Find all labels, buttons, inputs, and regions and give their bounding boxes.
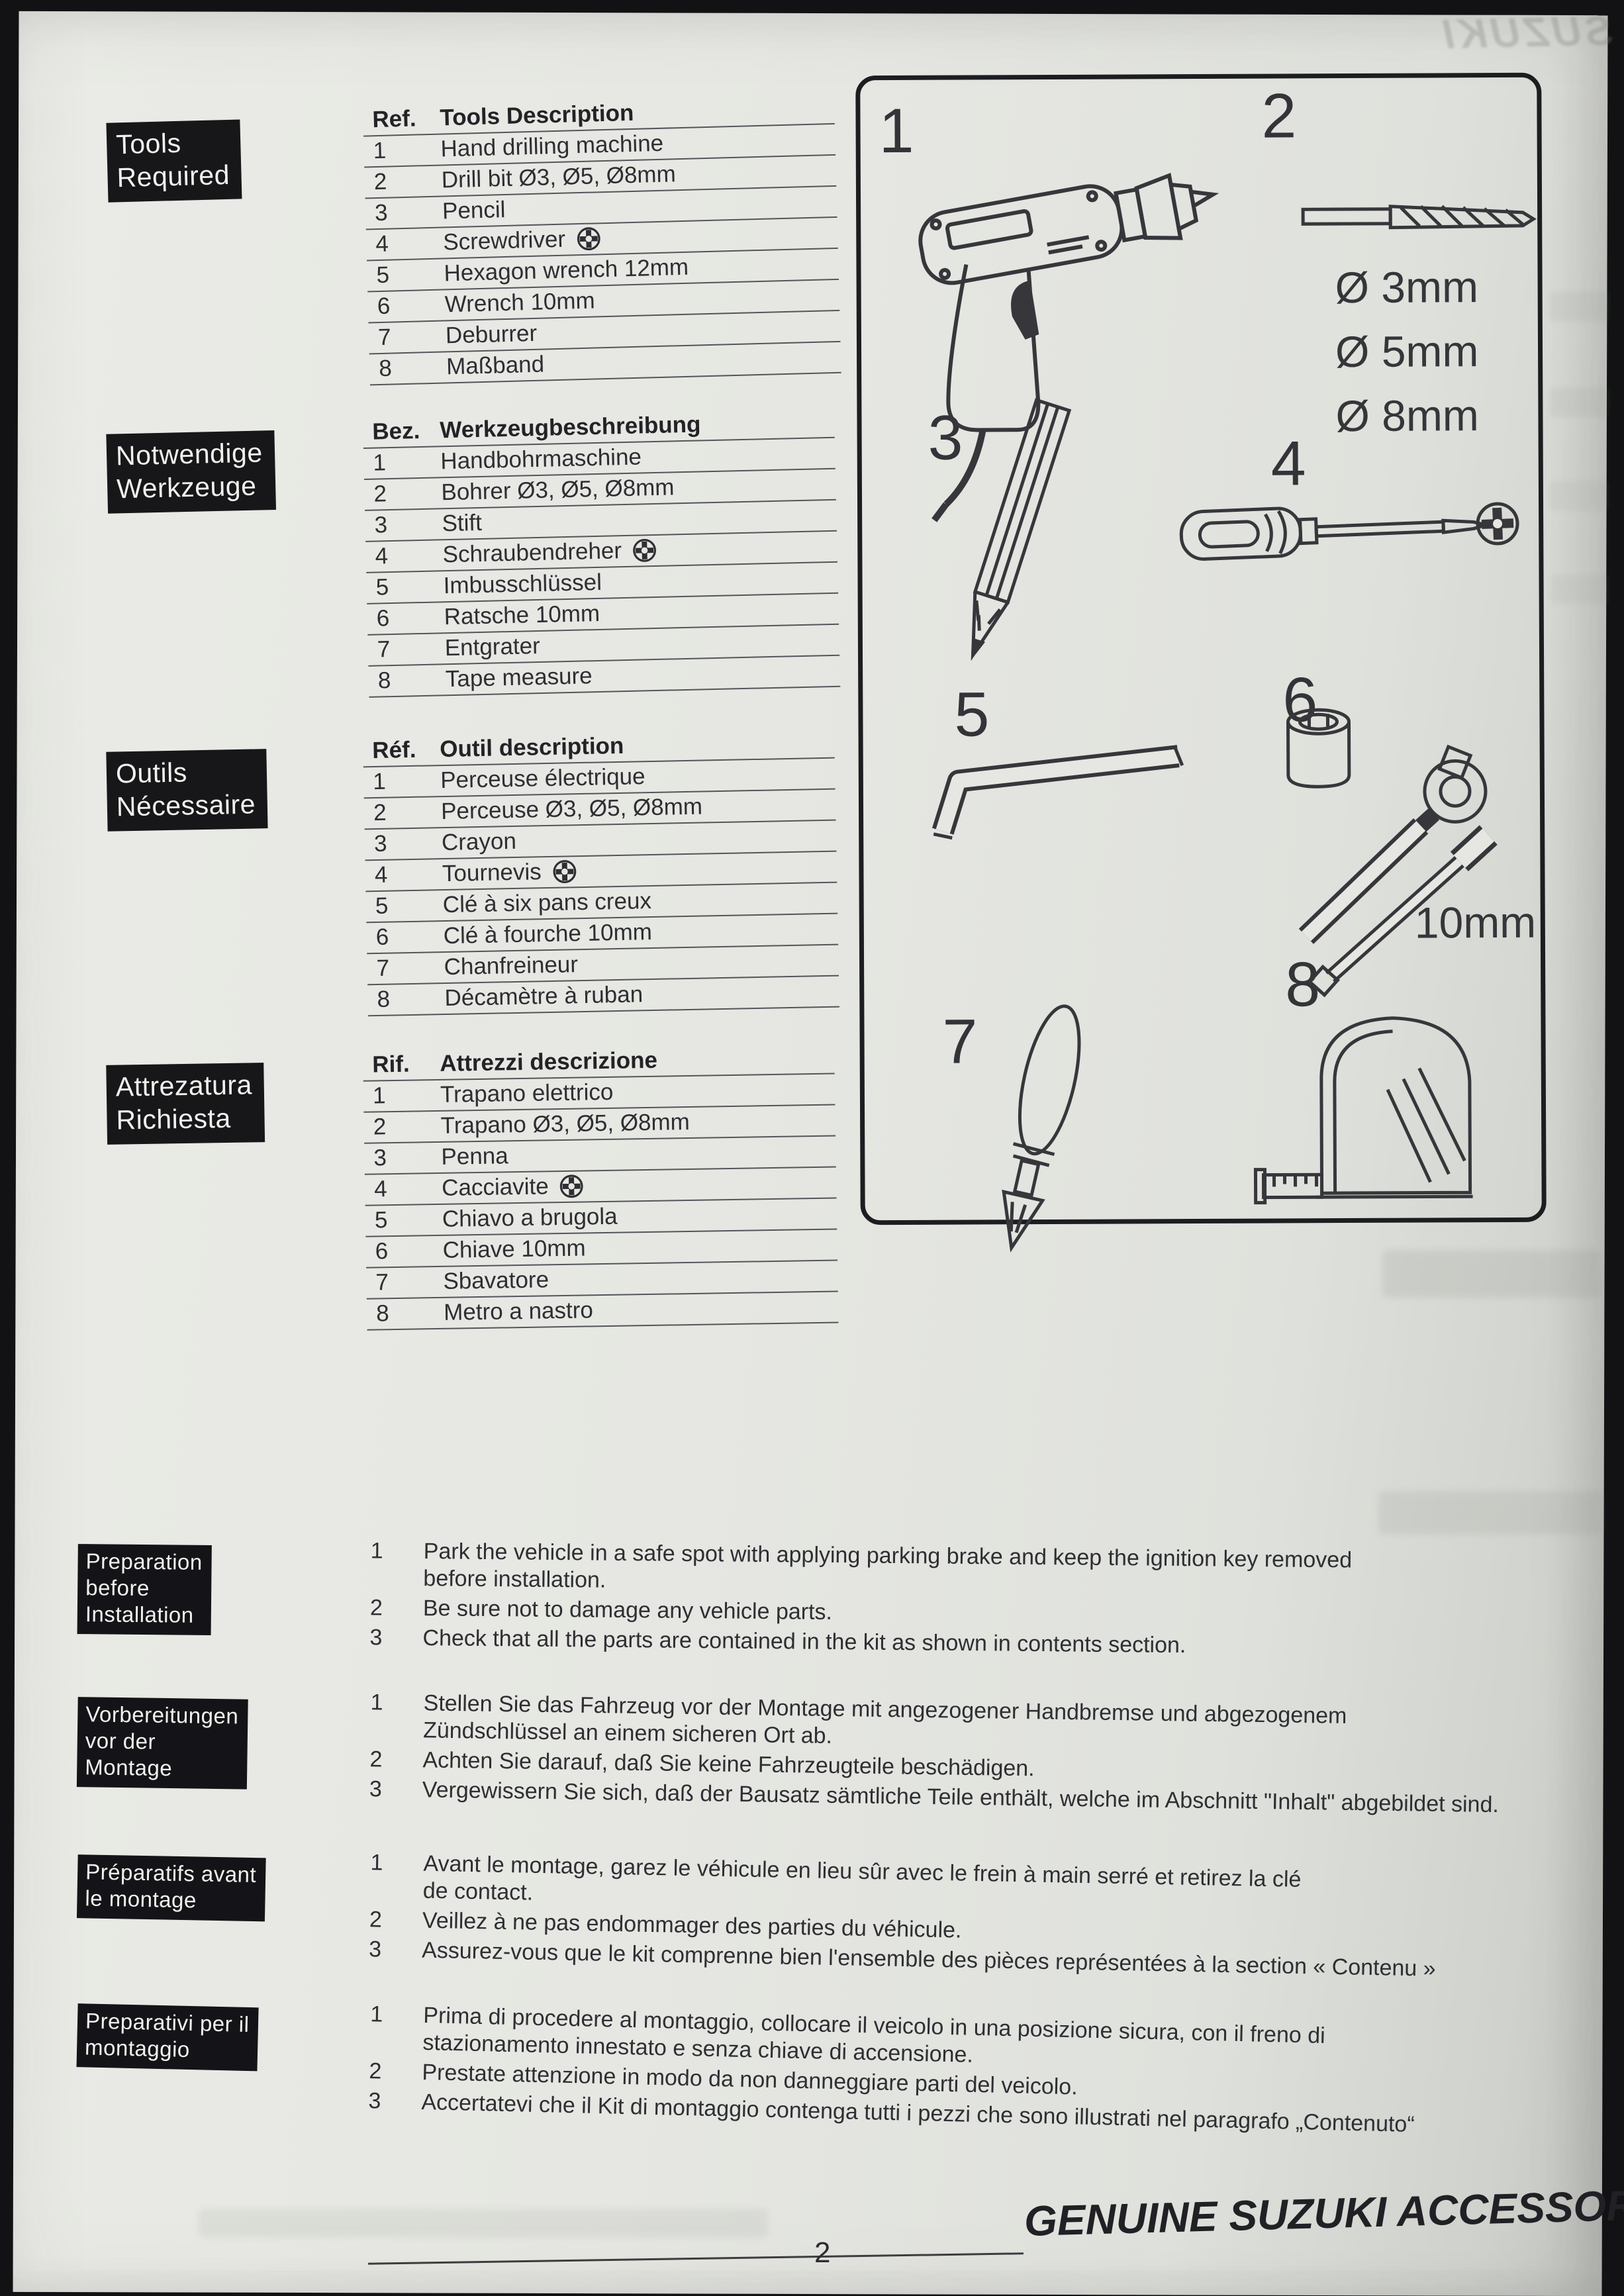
row-desc: Cacciavite — [442, 1169, 837, 1202]
ref-header: Bez. — [363, 417, 440, 446]
label-line: Preparativi per il — [85, 2007, 250, 2038]
row-desc-text: Perceuse Ø3, Ø5, Ø8mm — [441, 794, 703, 826]
row-ref: 6 — [367, 291, 445, 320]
row-ref: 5 — [365, 1206, 443, 1234]
prep-item-number: 2 — [369, 2058, 422, 2086]
label-line: Installation — [85, 1601, 202, 1629]
prep-label-de: Vorbereitungen vor der Montage — [77, 1697, 248, 1790]
label-line: Nécessaire — [116, 787, 256, 823]
prep-label-fr: Préparatifs avant le montage — [77, 1854, 266, 1921]
row-ref: 1 — [363, 448, 441, 477]
section-label-fr: Outils Nécessaire — [106, 749, 267, 832]
label-line: Preparation — [85, 1548, 202, 1576]
row-desc-text: Drill bit Ø3, Ø5, Ø8mm — [441, 161, 676, 193]
row-desc-text: Ratsche 10mm — [444, 600, 600, 630]
row-desc-text: Chiavo a brugola — [442, 1204, 618, 1233]
row-desc-text: Pencil — [442, 197, 506, 224]
desc-header: Attrezzi descrizione — [440, 1045, 835, 1077]
row-desc: Metro a nastro — [444, 1294, 839, 1326]
row-desc-text: Trapano elettrico — [440, 1079, 614, 1108]
row-desc-text: Imbusschlüssel — [443, 569, 602, 599]
label-line: Vorbereitungen — [85, 1701, 238, 1729]
row-desc-text: Entgrater — [444, 633, 540, 661]
row-desc-text: Sbavatore — [443, 1267, 549, 1295]
prep-item-number: 3 — [368, 2087, 422, 2116]
row-ref: 5 — [365, 892, 443, 920]
row-desc-text: Handbohrmaschine — [440, 444, 642, 475]
row-desc: Décamètre à ruban — [444, 978, 839, 1012]
row-desc: Perceuse électrique — [440, 760, 836, 794]
label-line: Richiesta — [116, 1101, 253, 1136]
section-label-it: Attrezatura Richiesta — [106, 1063, 265, 1145]
row-ref: 2 — [364, 798, 442, 826]
prep-items-en: 1 Park the vehicle in a safe spot with a… — [369, 1537, 1602, 1666]
row-desc-text: Hexagon wrench 12mm — [444, 254, 689, 287]
row-desc-text: Screwdriver — [443, 226, 566, 256]
row-desc: Penna — [441, 1138, 836, 1171]
row-ref: 6 — [365, 1237, 443, 1265]
phillips-head-icon — [559, 1174, 585, 1200]
row-desc-text: Schraubendreher — [442, 538, 622, 568]
prep-item-number: 1 — [370, 1537, 424, 1592]
table-rows: 1 Hand drilling machine 2 Drill bit Ø3, … — [363, 124, 841, 386]
row-ref: 5 — [366, 573, 444, 601]
row-desc-text: Cacciavite — [442, 1173, 549, 1202]
label-line: vor der — [85, 1727, 238, 1756]
section-label-de: Notwendige Werkzeuge — [106, 430, 275, 514]
row-ref: 5 — [367, 260, 444, 289]
row-desc-text: Crayon — [442, 828, 517, 856]
row-ref: 4 — [365, 861, 443, 888]
label-line: Tools — [116, 125, 230, 161]
row-ref: 2 — [363, 1113, 441, 1141]
row-desc-text: Metro a nastro — [444, 1297, 593, 1326]
row-desc-text: Chanfreineur — [444, 951, 578, 981]
prep-item-number: 1 — [369, 2001, 424, 2056]
hexagon-wrench-illustration — [916, 724, 1195, 851]
tools-illustration-box: 1 2 3 4 5 6 7 8 — [855, 73, 1547, 1225]
row-desc-text: Penna — [441, 1143, 508, 1171]
row-desc: Sbavatore — [443, 1263, 838, 1295]
row-desc: Chiave 10mm — [442, 1231, 837, 1264]
row-desc: Crayon — [442, 822, 837, 856]
label-line: Notwendige — [116, 436, 263, 472]
row-ref: 4 — [366, 229, 444, 258]
row-desc-text: Hand drilling machine — [440, 130, 664, 163]
bleedthrough-suzuki-text: SUZUKI — [1334, 8, 1613, 61]
bleedthrough-block — [1551, 575, 1609, 604]
row-ref: 8 — [367, 1300, 444, 1327]
row-desc-text: Chiave 10mm — [442, 1235, 586, 1263]
prep-items-de: 1 Stellen Sie das Fahrzeug vor der Monta… — [369, 1689, 1601, 1823]
desc-header: Outil description — [440, 729, 835, 763]
phillips-head-icon — [632, 538, 658, 563]
row-ref: 1 — [363, 136, 441, 165]
ref-header: Rif. — [363, 1051, 440, 1078]
row-desc: Chiavo a brugola — [442, 1200, 837, 1233]
table-rows: 1 Handbohrmaschine 2 Bohrer Ø3, Ø5, Ø8mm… — [363, 438, 840, 698]
row-desc: Chanfreineur — [444, 947, 839, 981]
phillips-head-icon — [576, 226, 602, 252]
tools-table-de: Bez. Werkzeugbeschreibung 1 Handbohrmasc… — [363, 407, 840, 698]
row-desc: Trapano Ø3, Ø5, Ø8mm — [440, 1107, 836, 1139]
row-ref: 7 — [367, 954, 444, 982]
table-row: 8 Metro a nastro — [367, 1292, 839, 1331]
prep-item-number: 1 — [370, 1689, 424, 1744]
row-desc-text: Trapano Ø3, Ø5, Ø8mm — [440, 1109, 690, 1139]
row-ref: 4 — [365, 1175, 442, 1203]
prep-item-number: 2 — [369, 1906, 423, 1934]
row-desc: Tournevis — [442, 853, 837, 887]
row-ref: 8 — [368, 666, 446, 694]
row-desc-text: Maßband — [446, 352, 545, 381]
row-desc-text: Clé à six pans creux — [442, 888, 651, 918]
row-ref: 1 — [363, 1082, 441, 1110]
socket-size-label: 10mm — [1415, 897, 1537, 948]
label-line: Montage — [85, 1754, 238, 1782]
row-desc-text: Deburrer — [445, 320, 537, 350]
tools-table-en: Ref. Tools Description 1 Hand drilling m… — [363, 93, 841, 385]
row-ref: 3 — [365, 830, 442, 857]
row-ref: 6 — [366, 923, 444, 951]
prep-item-number: 2 — [370, 1594, 423, 1622]
section-tools-required-de: Notwendige Werkzeuge Bez. Werkzeugbeschr… — [99, 407, 867, 715]
row-ref: 4 — [365, 542, 443, 570]
prep-item-text: Park the vehicle in a safe spot with app… — [423, 1538, 1602, 1603]
prep-item-number: 3 — [369, 1936, 422, 1964]
row-desc: Trapano elettrico — [440, 1076, 836, 1108]
bleedthrough-block — [1382, 1250, 1601, 1298]
row-desc-text: Tape measure — [445, 663, 593, 693]
row-ref: 7 — [367, 635, 445, 663]
label-line: Werkzeuge — [117, 469, 264, 505]
row-ref: 7 — [369, 322, 446, 351]
label-line: Outils — [115, 755, 255, 790]
label-line: Required — [117, 158, 230, 194]
bleedthrough-block — [1549, 291, 1609, 322]
ref-header: Ref. — [363, 105, 440, 134]
page-number: 2 — [814, 2236, 830, 2270]
prep-item-number: 1 — [369, 1849, 423, 1904]
row-ref: 3 — [364, 1144, 442, 1172]
section-label-en: Tools Required — [106, 119, 242, 202]
table-rows: 1 Trapano elettrico 2 Trapano Ø3, Ø5, Ø8… — [363, 1075, 839, 1331]
row-ref: 2 — [364, 479, 442, 508]
drill-size-3mm: Ø 3mm — [1335, 255, 1478, 320]
phillips-head-icon — [551, 859, 577, 885]
row-desc: Clé à fourche 10mm — [443, 916, 838, 949]
tools-table-it: Rif. Attrezzi descrizione 1 Trapano elet… — [363, 1043, 839, 1331]
label-line: Préparatifs avant — [85, 1858, 257, 1888]
section-tools-required-fr: Outils Nécessaire Réf. Outil description… — [99, 727, 866, 1033]
bleedthrough-block — [1378, 1491, 1602, 1535]
screwdriver-illustration — [1173, 469, 1525, 590]
row-ref: 8 — [369, 354, 447, 382]
row-ref: 2 — [364, 167, 442, 196]
row-desc-text: Wrench 10mm — [444, 288, 595, 318]
row-desc: Clé à six pans creux — [442, 885, 837, 918]
row-desc-text: Bohrer Ø3, Ø5, Ø8mm — [441, 474, 675, 506]
figure-number-2: 2 — [1261, 85, 1296, 148]
section-tools-required-it: Attrezatura Richiesta Rif. Attrezzi desc… — [99, 1043, 865, 1346]
bleedthrough-block — [199, 2209, 768, 2238]
section-tools-required-en: Tools Required Ref. Tools Description 1 … — [99, 93, 868, 404]
row-ref: 3 — [365, 510, 442, 539]
drill-size-8mm: Ø 8mm — [1335, 383, 1479, 448]
label-line: montaggio — [85, 2034, 249, 2064]
row-desc-text: Stift — [442, 510, 482, 537]
pencil-illustration — [934, 396, 1088, 681]
drill-size-5mm: Ø 5mm — [1335, 319, 1479, 384]
label-line: Attrezatura — [115, 1068, 252, 1103]
drill-bit-illustration — [1298, 189, 1536, 243]
row-desc-text: Clé à fourche 10mm — [443, 919, 652, 949]
row-ref: 7 — [366, 1268, 444, 1296]
tools-table-fr: Réf. Outil description 1 Perceuse électr… — [363, 728, 839, 1017]
bleedthrough-block — [1549, 387, 1609, 418]
table-rows: 1 Perceuse électrique 2 Perceuse Ø3, Ø5,… — [363, 759, 839, 1017]
deburrer-illustration — [957, 996, 1117, 1275]
row-ref: 3 — [365, 198, 443, 226]
label-line: le montage — [85, 1885, 256, 1915]
row-ref: 1 — [363, 767, 441, 795]
prep-item-number: 2 — [369, 1746, 423, 1774]
drill-size-labels: Ø 3mm Ø 5mm Ø 8mm — [1335, 255, 1479, 448]
prep-label-it: Preparativi per il montaggio — [77, 2003, 260, 2071]
row-desc-text: Tournevis — [442, 859, 542, 887]
row-desc: Perceuse Ø3, Ø5, Ø8mm — [441, 791, 836, 825]
row-ref: 6 — [367, 604, 444, 632]
prep-item-number: 3 — [369, 1624, 422, 1652]
label-line: before — [85, 1574, 202, 1602]
bleedthrough-block — [1549, 481, 1609, 511]
prep-item-number: 3 — [369, 1776, 423, 1803]
row-ref: 8 — [367, 985, 445, 1013]
ref-header: Réf. — [363, 736, 440, 764]
prep-item: 1 Park the vehicle in a safe spot with a… — [370, 1537, 1602, 1603]
prep-items-fr: 1 Avant le montage, garez le véhicule en… — [369, 1849, 1602, 1988]
row-desc-text: Perceuse électrique — [440, 763, 645, 794]
prep-label-en: Preparation before Installation — [77, 1544, 212, 1635]
row-desc-text: Décamètre à ruban — [444, 981, 643, 1012]
socket-ratchet-illustration — [1260, 692, 1539, 1004]
tape-measure-illustration — [1255, 996, 1527, 1210]
